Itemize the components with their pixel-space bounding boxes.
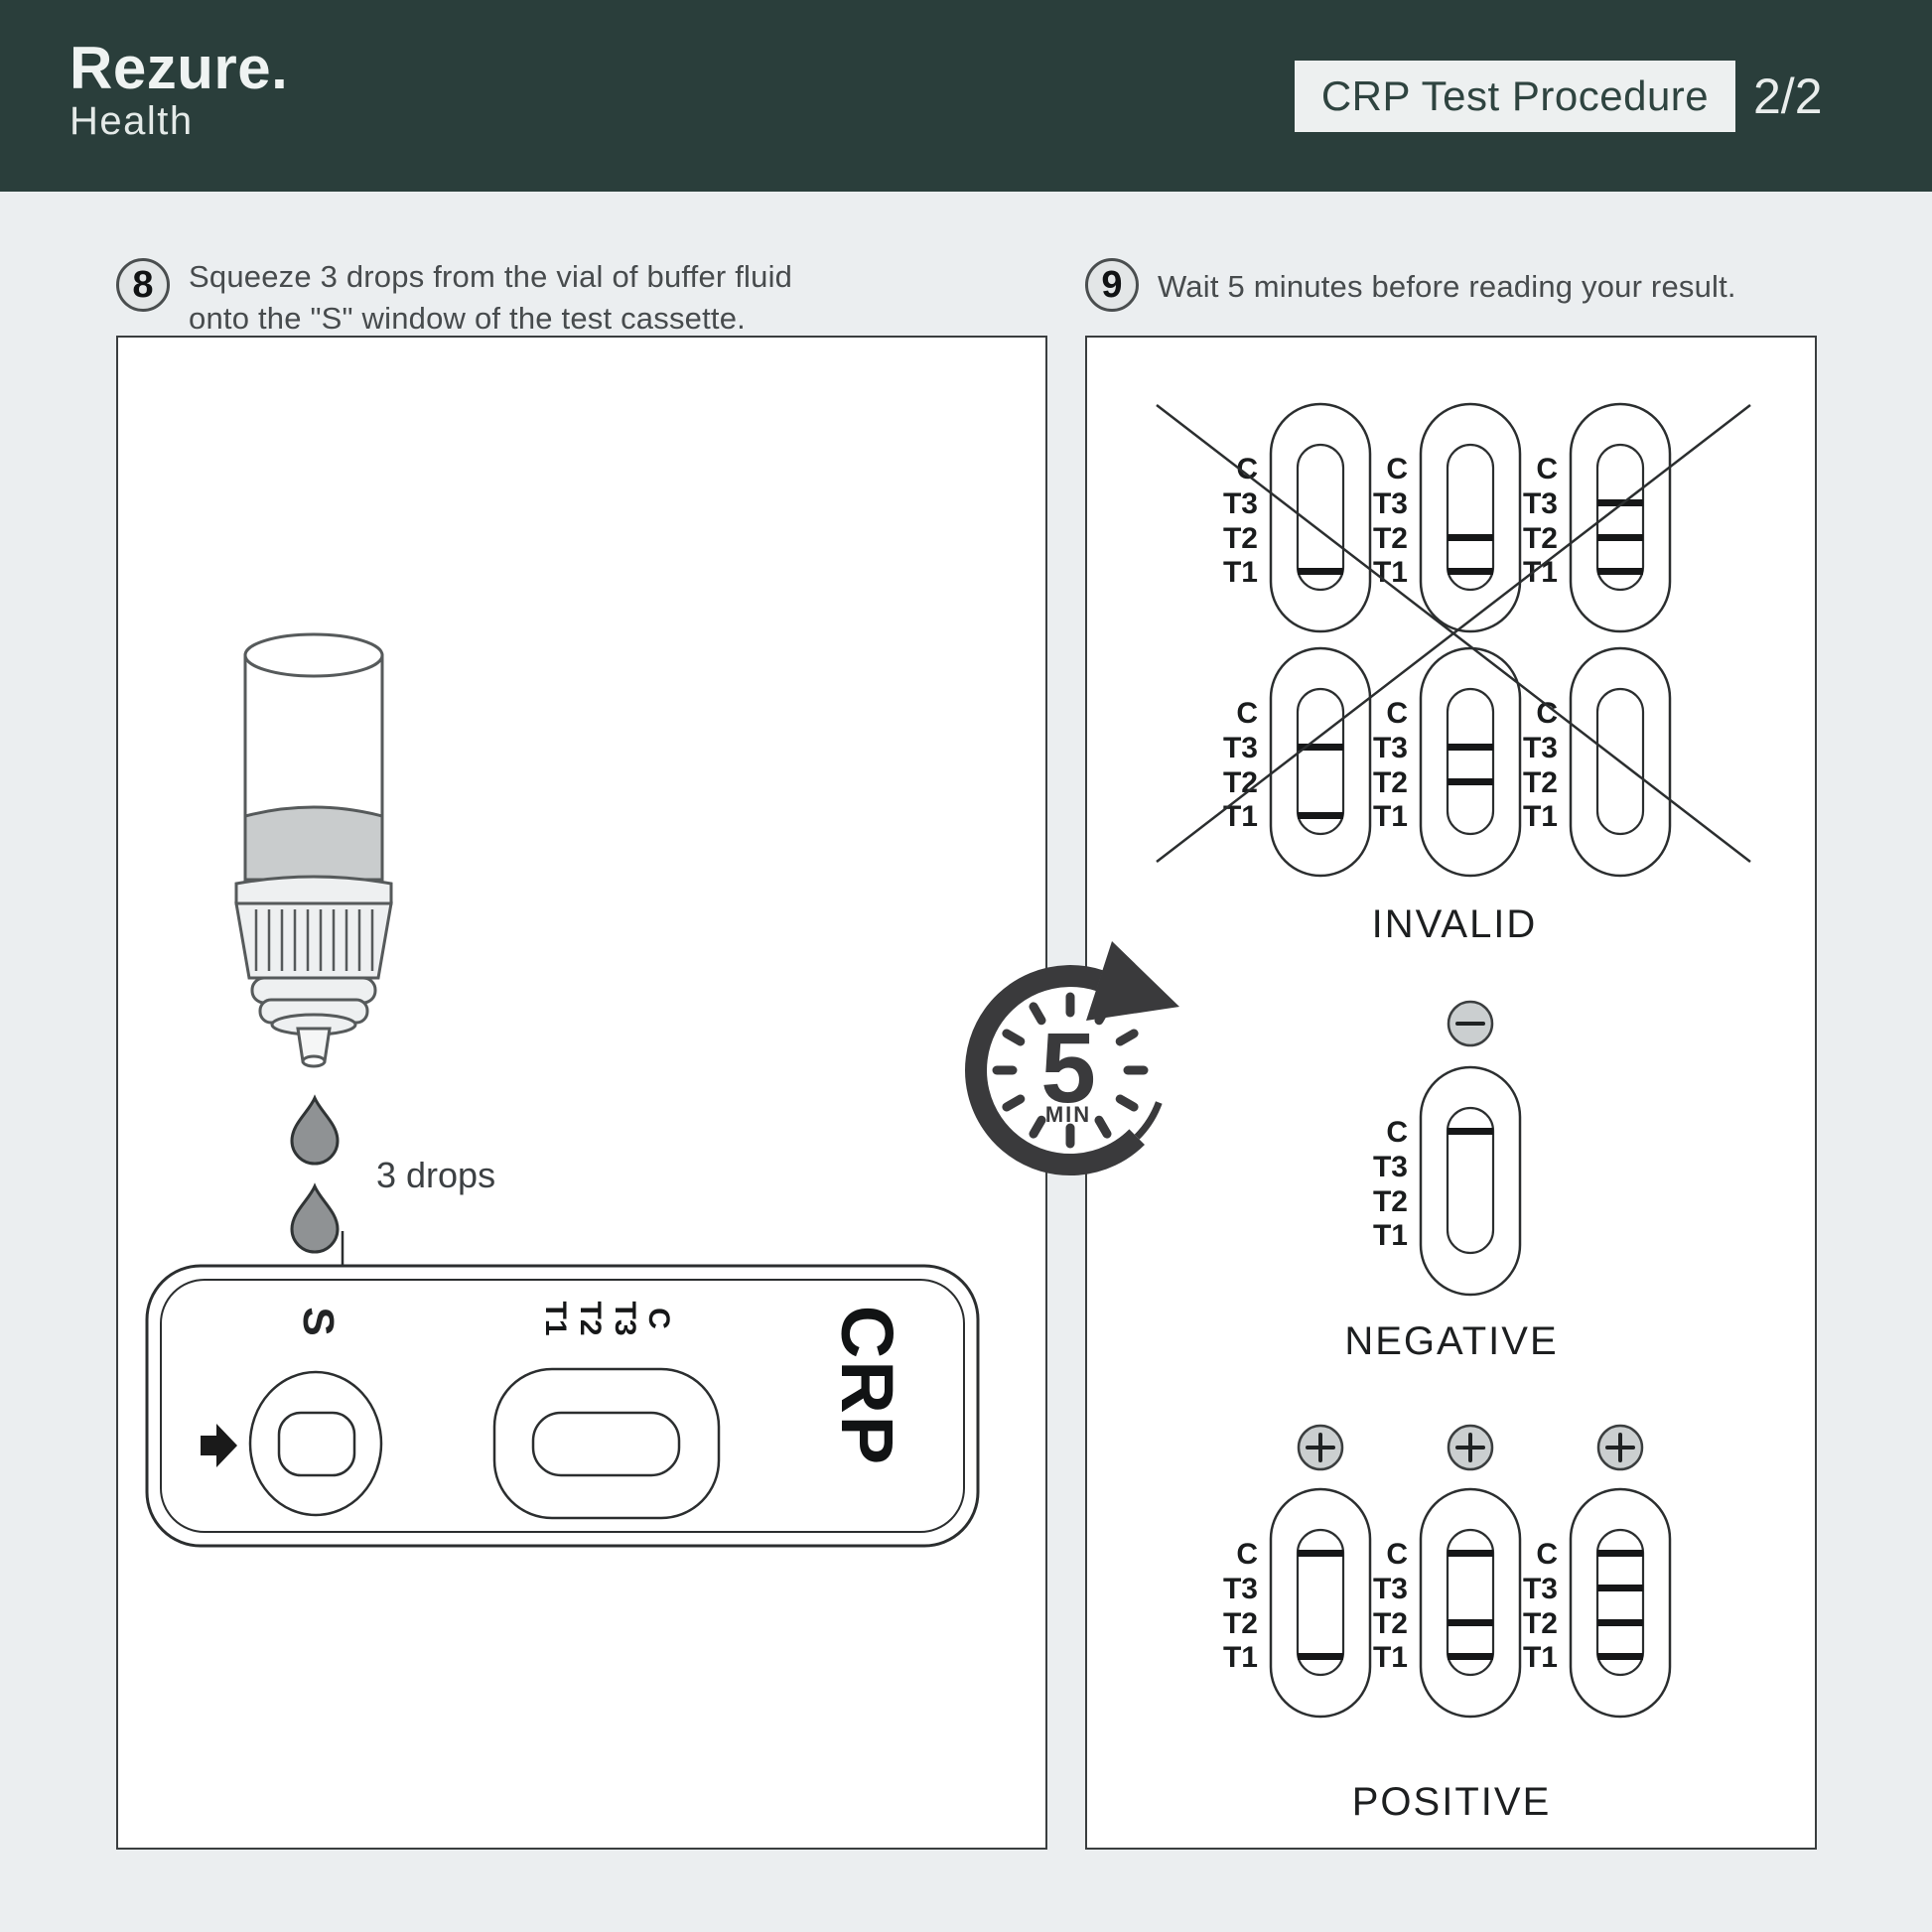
vial-liquid-band — [245, 807, 382, 880]
assay-name-label: CRP — [826, 1306, 908, 1466]
five-min-timer-icon: 5 MIN — [948, 928, 1206, 1186]
result-window-opening — [533, 1413, 679, 1475]
row-label-T2: T2 — [1223, 766, 1258, 799]
step-9-badge: 9 — [1085, 258, 1139, 312]
result-cassette: CT3T2T1 — [1373, 1489, 1520, 1717]
brand-logo: Rezure. Health — [69, 38, 288, 143]
row-label-T3: T3 — [1373, 1573, 1408, 1605]
document-title-box: CRP Test Procedure — [1295, 61, 1735, 132]
cassette-window — [1448, 689, 1493, 834]
plus-icon — [1598, 1426, 1642, 1469]
buffer-vial — [236, 634, 391, 1066]
positive-group: CT3T2T1CT3T2T1CT3T2T1 — [1223, 1426, 1670, 1717]
row-label-T1: T1 — [1373, 1641, 1408, 1674]
result-cassette-groups: CT3T2T1CT3T2T1CT3T2T1CT3T2T1CT3T2T1CT3T2… — [1157, 404, 1750, 1717]
row-label-T3: T3 — [1373, 1151, 1408, 1183]
invalid-label: INVALID — [1372, 902, 1538, 946]
step-8-line-1: Squeeze 3 drops from the vial of buffer … — [189, 256, 864, 298]
test-line-T1 — [1298, 812, 1343, 819]
drop-icons — [292, 1098, 338, 1252]
row-label-T3: T3 — [1373, 732, 1408, 764]
test-line-T3 — [1448, 744, 1493, 751]
row-label-C: C — [1386, 1538, 1408, 1571]
row-label-T1: T1 — [1373, 800, 1408, 833]
row-label-T1: T1 — [1523, 800, 1558, 833]
step-8-panel: 3 drops S T1 T2 T3 C CRP — [116, 336, 1047, 1850]
result-cassette: CT3T2T1 — [1223, 1489, 1370, 1717]
row-label-C: C — [1536, 453, 1558, 485]
test-line-T1 — [1298, 1653, 1343, 1660]
plus-icon — [1299, 1426, 1342, 1469]
negative-group: CT3T2T1 — [1373, 1002, 1520, 1295]
test-line-T1 — [1597, 568, 1643, 575]
row-label-T3: T3 — [1523, 1573, 1558, 1605]
test-line-T3 — [1597, 1585, 1643, 1591]
row-label-C: C — [1236, 697, 1258, 730]
brand-subtitle: Health — [69, 99, 288, 143]
header-bar: Rezure. Health CRP Test Procedure 2/2 — [0, 0, 1932, 192]
row-label-C: C — [1386, 1116, 1408, 1149]
step-9-line-1: Wait 5 minutes before reading your resul… — [1158, 266, 1793, 308]
result-cassette: CT3T2T1 — [1373, 404, 1520, 631]
test-line-C — [1298, 1550, 1343, 1557]
window-label-t3: T3 — [609, 1301, 641, 1335]
row-label-T2: T2 — [1373, 766, 1408, 799]
positive-label: POSITIVE — [1352, 1780, 1552, 1824]
drops-annotation: 3 drops — [376, 1155, 495, 1195]
window-label-t2: T2 — [574, 1301, 607, 1335]
sample-well-label: S — [294, 1307, 343, 1335]
step-9-text: Wait 5 minutes before reading your resul… — [1158, 266, 1793, 308]
test-line-T2 — [1448, 1619, 1493, 1626]
test-line-T1 — [1448, 1653, 1493, 1660]
row-label-C: C — [1536, 697, 1558, 730]
instruction-sheet: { "header": { "brand": "Rezure.", "brand… — [0, 0, 1932, 1932]
invalid-group: CT3T2T1CT3T2T1CT3T2T1CT3T2T1CT3T2T1CT3T2… — [1157, 404, 1750, 876]
row-label-T3: T3 — [1223, 1573, 1258, 1605]
timer-unit: MIN — [1045, 1102, 1091, 1127]
row-label-T2: T2 — [1373, 1607, 1408, 1640]
test-line-T2 — [1448, 778, 1493, 785]
test-line-T2 — [1597, 1619, 1643, 1626]
result-cassette: CT3T2T1 — [1373, 648, 1520, 876]
row-label-T1: T1 — [1223, 556, 1258, 589]
row-label-T2: T2 — [1373, 522, 1408, 555]
row-label-T1: T1 — [1523, 556, 1558, 589]
vial-cap-collar — [236, 877, 391, 903]
row-label-T2: T2 — [1373, 1185, 1408, 1218]
row-label-T1: T1 — [1223, 1641, 1258, 1674]
test-line-T2 — [1597, 534, 1643, 541]
row-label-T2: T2 — [1223, 1607, 1258, 1640]
result-cassette: CT3T2T1 — [1223, 648, 1370, 876]
row-label-C: C — [1386, 697, 1408, 730]
buffer-drop-illustration: 3 drops S T1 T2 T3 C CRP — [118, 338, 1045, 1848]
row-label-T2: T2 — [1523, 1607, 1558, 1640]
vial-base — [245, 634, 382, 676]
test-line-T1 — [1597, 1653, 1643, 1660]
drop-icon — [292, 1186, 338, 1252]
result-cassette: CT3T2T1 — [1523, 404, 1670, 631]
test-line-T1 — [1448, 568, 1493, 575]
row-label-T3: T3 — [1223, 732, 1258, 764]
step-8-line-2: onto the "S" window of the test cassette… — [189, 298, 864, 340]
test-cassette: S T1 T2 T3 C CRP — [147, 1266, 978, 1546]
row-label-C: C — [1536, 1538, 1558, 1571]
row-label-T1: T1 — [1523, 1641, 1558, 1674]
row-label-T2: T2 — [1523, 522, 1558, 555]
row-label-T1: T1 — [1373, 1219, 1408, 1252]
nozzle-tip — [303, 1056, 325, 1066]
test-line-T2 — [1448, 534, 1493, 541]
row-label-T2: T2 — [1523, 766, 1558, 799]
row-label-C: C — [1236, 1538, 1258, 1571]
drop-icon — [292, 1098, 338, 1164]
row-label-T3: T3 — [1373, 487, 1408, 520]
result-cassette: CT3T2T1 — [1373, 1067, 1520, 1295]
result-cassette: CT3T2T1 — [1223, 404, 1370, 631]
test-line-C — [1597, 1550, 1643, 1557]
window-label-c: C — [642, 1308, 675, 1329]
row-label-C: C — [1386, 453, 1408, 485]
row-label-T2: T2 — [1223, 522, 1258, 555]
row-label-T3: T3 — [1523, 487, 1558, 520]
brand-name: Rezure. — [69, 38, 288, 99]
plus-icon — [1449, 1426, 1492, 1469]
clock-arrow-head — [1086, 941, 1179, 1021]
result-cassette: CT3T2T1 — [1523, 1489, 1670, 1717]
result-cassette: CT3T2T1 — [1523, 648, 1670, 876]
row-label-T3: T3 — [1223, 487, 1258, 520]
step-8-badge: 8 — [116, 258, 170, 312]
test-line-T1 — [1298, 568, 1343, 575]
test-line-C — [1448, 1128, 1493, 1135]
step-8-text: Squeeze 3 drops from the vial of buffer … — [189, 256, 864, 340]
minus-icon — [1449, 1002, 1492, 1045]
negative-label: NEGATIVE — [1344, 1319, 1558, 1363]
page-indicator: 2/2 — [1753, 61, 1823, 132]
vial-cap-ribbed — [236, 903, 391, 978]
sample-well-opening — [279, 1413, 354, 1475]
document-title: CRP Test Procedure — [1321, 72, 1709, 120]
test-line-C — [1448, 1550, 1493, 1557]
window-label-t1: T1 — [539, 1301, 572, 1335]
row-label-T3: T3 — [1523, 732, 1558, 764]
